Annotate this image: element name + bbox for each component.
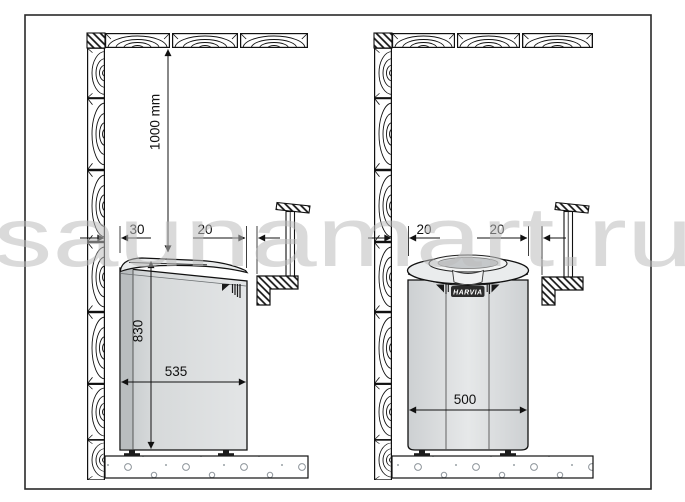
dim-heater-width: 500 (454, 392, 477, 407)
installation-diagram: 1000 mm 830 535 30 20 (0, 0, 685, 502)
heater-front-view: HARVIA (408, 255, 529, 456)
floor-right (392, 456, 593, 478)
ceiling-corner-block-left (87, 33, 105, 48)
heater-side-view (120, 258, 247, 456)
harvia-logo-text: HARVIA (453, 289, 482, 296)
diagram-canvas: 1000 mm 830 535 30 20 (0, 0, 685, 502)
dim-ceiling-clearance: 1000 mm (148, 94, 163, 150)
dim-heater-height: 830 (131, 320, 146, 343)
dim-heater-depth: 535 (165, 364, 188, 379)
watermark-text: saunamart.ru (0, 190, 685, 284)
floor-left (105, 456, 308, 478)
ceiling-corner-block-right (374, 33, 392, 48)
